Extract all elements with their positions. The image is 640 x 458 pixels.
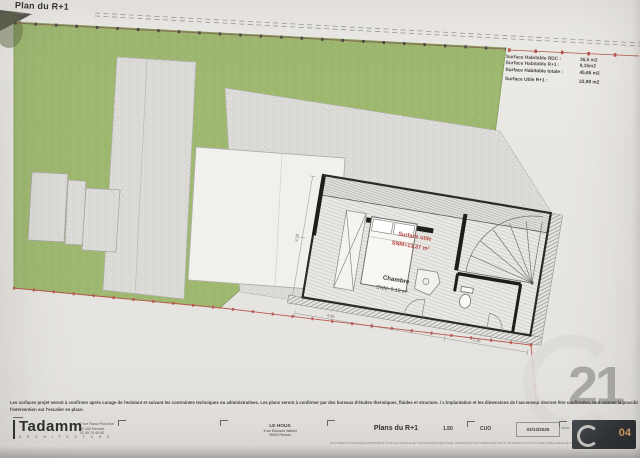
dim-label-bottom-a: 4,56 (327, 313, 336, 319)
project-code: CUO (480, 426, 491, 432)
photo-bottom-shadow (0, 446, 640, 458)
titleblock-corner-mark (118, 420, 126, 426)
surface-table: Surface Habitable RDC :36,5 m2 Surface H… (505, 55, 632, 88)
sheet-logo-ring (577, 425, 599, 447)
general-notes: Les surfaces projet seront à confirmer a… (10, 399, 638, 413)
scale-value: 1.50 (443, 426, 453, 432)
note-line: Les surfaces projet seront à confirmer a… (10, 399, 638, 406)
scanned-plan-sheet: 4,56 2,35 4,58 Surface utile SNM=13,37 m… (0, 0, 640, 458)
document-title: Plans du R+1 (350, 425, 442, 432)
sheet-title: Plan du R+1 (15, 0, 69, 12)
titleblock-corner-mark (220, 420, 228, 426)
photo-right-shade (632, 0, 640, 458)
client-block: LE HOUX 3 rue Édouard Vaillant 35000 Ren… (244, 424, 316, 437)
titleblock-corner-mark (467, 421, 475, 427)
gravel-box-3 (82, 188, 120, 252)
sheet-number-box: 04 (572, 420, 636, 449)
date-box: 03/12/2025 (516, 422, 560, 437)
note-line: l'intervention sur l'escalier en place. (10, 406, 638, 413)
gravel-box-1 (28, 172, 68, 242)
architect-address: 2 rue Raoul Ponchon 35 400 Rennes 02 99 … (80, 422, 114, 436)
titleblock-corner-mark (327, 420, 335, 426)
date-value: 03/12/2025 (527, 427, 550, 432)
indice-label: indice (561, 426, 569, 430)
sheet-number: 04 (619, 427, 631, 439)
gravel-strip-left (103, 57, 196, 299)
